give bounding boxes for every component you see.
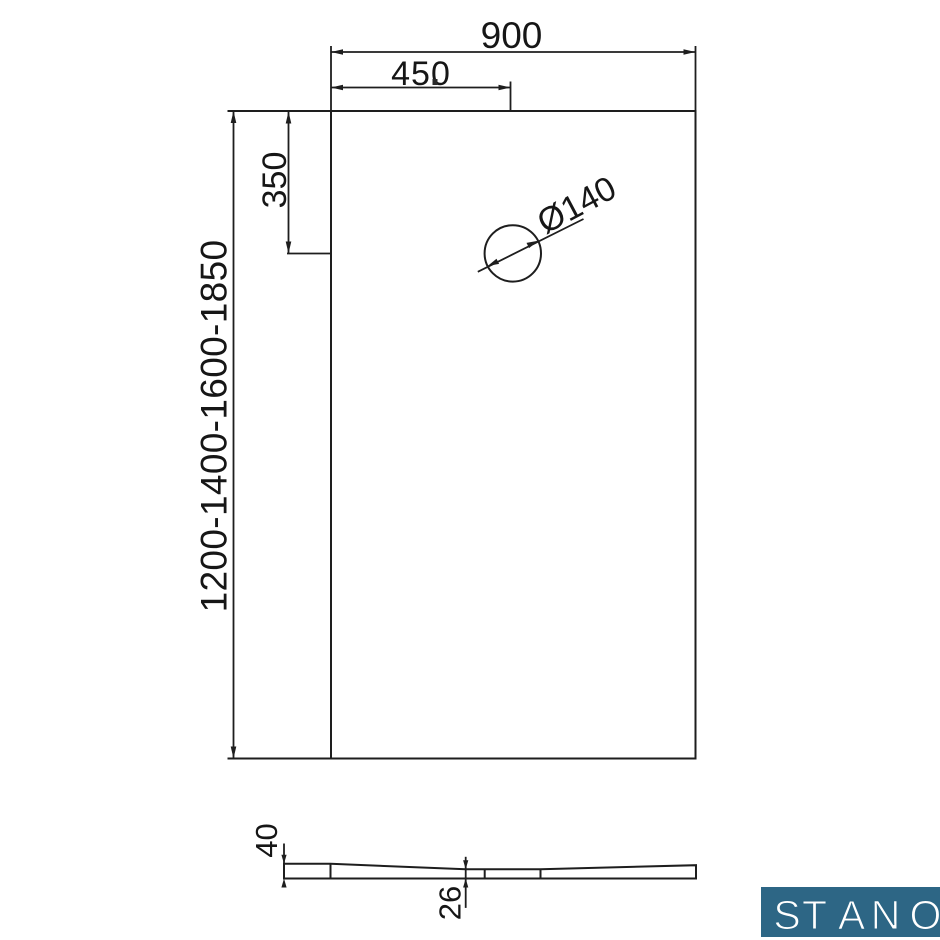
svg-text:N: N [871, 892, 901, 938]
svg-text:450: 450 [391, 55, 451, 93]
svg-text:26: 26 [433, 886, 468, 920]
svg-text:40: 40 [249, 823, 284, 857]
svg-text:S: S [773, 892, 800, 938]
svg-text:1200-1400-1600-1850: 1200-1400-1600-1850 [194, 240, 235, 613]
svg-text:T: T [802, 892, 827, 938]
svg-text:A: A [838, 892, 866, 938]
svg-text:O: O [910, 892, 940, 938]
svg-text:350: 350 [256, 152, 294, 209]
svg-text:900: 900 [481, 15, 543, 56]
